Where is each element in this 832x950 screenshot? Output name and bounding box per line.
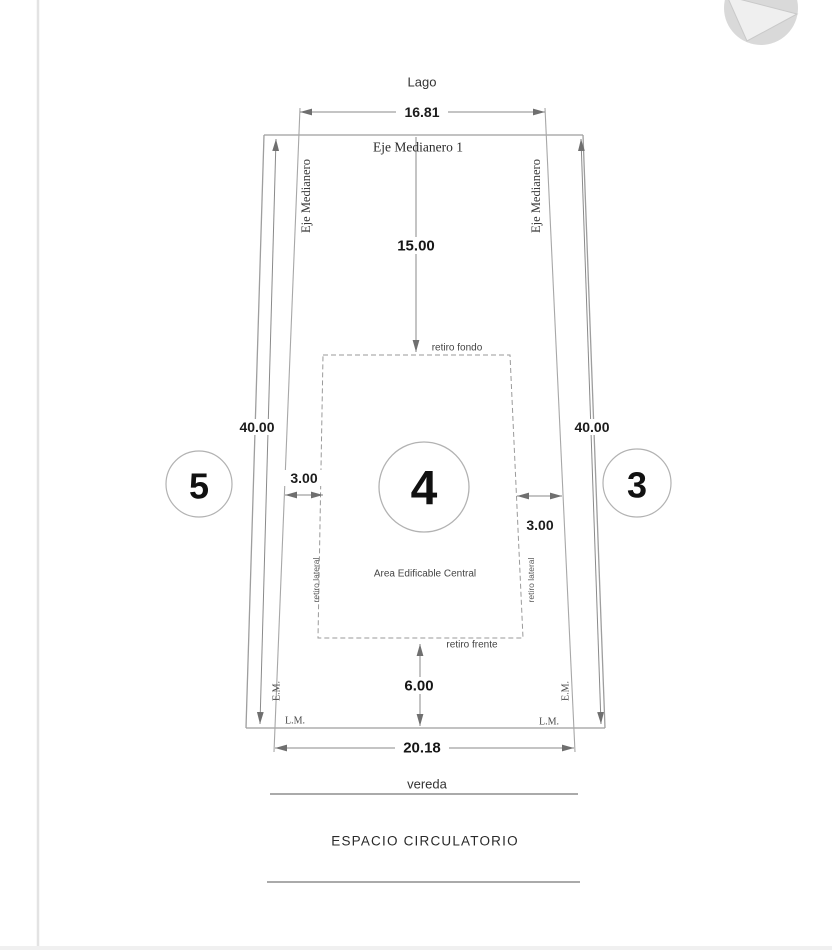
lm-right-label: L.M. [539,717,559,728]
eje-medianero-top-label: Eje Medianero 1 [373,140,463,155]
site-plan-drawing: 16.81 40.00 40.00 15.00 3.00 3.00 6.00 2… [0,0,832,950]
dim-front-setback: 6.00 [404,678,433,695]
em-left-label: E.M. [272,681,283,701]
retiro-frente-label: retiro frente [446,640,498,651]
buildable-area-label: Area Edificable Central [374,569,476,580]
em-right-label: E.M. [561,681,572,701]
neighbor-left-badge: 5 [166,451,232,517]
watermark-logo-icon [724,0,798,45]
site-plan-page: 16.81 40.00 40.00 15.00 3.00 3.00 6.00 2… [0,0,832,950]
lot-number-badge: 4 [379,442,469,532]
dim-side-right: 3.00 [526,517,553,533]
vereda-label: vereda [407,777,448,792]
neighbor-left-number: 5 [189,466,209,507]
retiro-fondo-label: retiro fondo [432,343,483,354]
lm-left-label: L.M. [285,716,305,727]
retiro-lateral-left-label: retiro lateral [311,557,321,602]
dim-side-left: 3.00 [290,470,317,486]
retiro-lateral-right-label: retiro lateral [526,557,536,602]
lago-label: Lago [408,75,437,90]
page-bottom-strip [0,946,832,950]
dim-back-setback: 15.00 [397,238,435,255]
eje-medianero-left-label: Eje Medianero [299,159,313,233]
dimension-text-masks [232,104,617,756]
espacio-circulatorio-label: ESPACIO CIRCULATORIO [331,834,519,849]
dim-top-width: 16.81 [404,104,439,120]
dim-depth-right: 40.00 [574,419,609,435]
eje-medianero-right-label: Eje Medianero [529,159,543,233]
neighbor-right-number: 3 [627,465,647,506]
lot-number: 4 [411,463,438,516]
neighbor-right-badge: 3 [603,449,671,517]
dim-depth-left: 40.00 [239,419,274,435]
dim-bottom-width: 20.18 [403,740,441,757]
